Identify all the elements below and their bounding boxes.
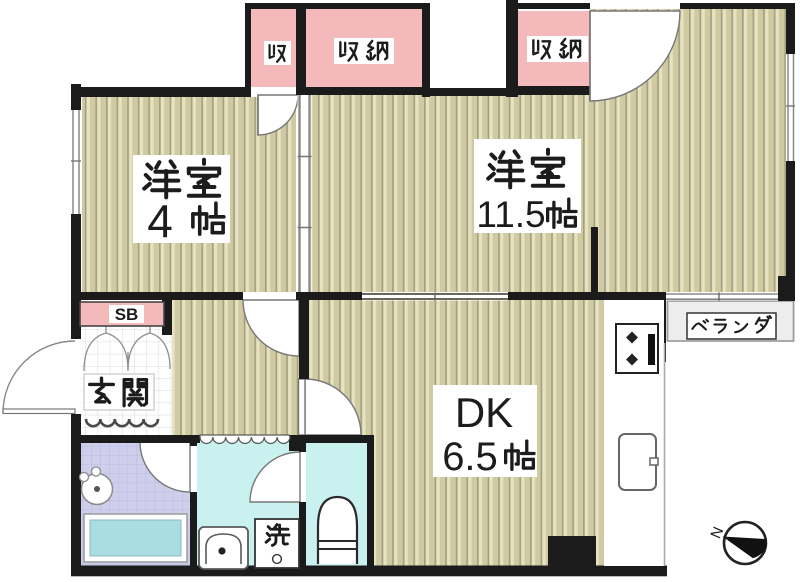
svg-text:4: 4 (147, 195, 173, 247)
svg-text:11.5: 11.5 (476, 194, 545, 235)
svg-text:DK: DK (455, 389, 513, 436)
svg-text:6.5: 6.5 (442, 435, 498, 479)
svg-text:SB: SB (115, 305, 139, 324)
